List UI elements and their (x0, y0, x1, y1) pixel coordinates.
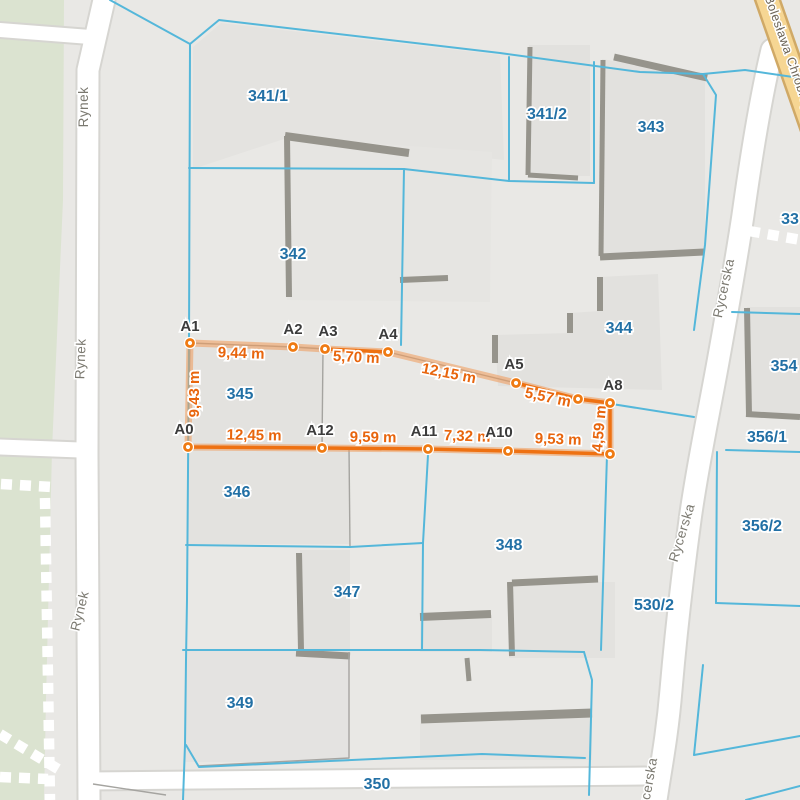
measure-segment (428, 449, 508, 451)
vertex-label-a2: A2 (283, 321, 302, 338)
distance-label: 9,53 m (535, 430, 582, 449)
measure-point-center (514, 381, 518, 385)
street-label-rynek: Rynek (76, 87, 91, 128)
measure-point-center (320, 446, 324, 450)
vertex-label-a12: A12 (306, 422, 334, 439)
parcel-label-530-2: 530/2 (634, 597, 674, 614)
parcel-label-347: 347 (334, 584, 361, 601)
measure-point-center (426, 447, 430, 451)
distance-label: 5,70 m (332, 348, 380, 367)
vertex-label-a11: A11 (411, 423, 438, 440)
measure-point-center (608, 452, 612, 456)
map-canvas[interactable]: RynekRynekRynekRycerskaRycerskaRycerskaB… (0, 0, 800, 800)
parcel-label-33: 33 (781, 211, 799, 228)
measure-segment (188, 447, 322, 448)
parcel-label-356-1: 356/1 (747, 429, 787, 446)
measure-point-center (386, 350, 390, 354)
parcel-label-341-2: 341/2 (527, 106, 567, 123)
vertex-label-a1: A1 (180, 318, 199, 335)
parcel-label-342: 342 (280, 246, 307, 263)
parcel-label-345: 345 (227, 386, 254, 403)
measure-point-center (323, 347, 327, 351)
measure-point-center (188, 341, 192, 345)
measure-point-center (186, 445, 190, 449)
measure-segment (322, 448, 428, 449)
measure-point-center (506, 449, 510, 453)
vertex-label-a10: A10 (485, 424, 513, 441)
vertex-label-a8: A8 (603, 377, 622, 394)
parcel-label-344: 344 (606, 320, 633, 337)
vertex-label-a3: A3 (318, 323, 337, 340)
measure-point-center (576, 397, 580, 401)
parcel-label-348: 348 (496, 537, 523, 554)
parcel-label-343: 343 (638, 119, 665, 136)
parcel-label-356-2: 356/2 (742, 518, 782, 535)
parcel-label-346: 346 (224, 484, 251, 501)
parcel-label-349: 349 (227, 695, 254, 712)
measure-point-center (608, 401, 612, 405)
street-label-rynek: Rynek (72, 338, 88, 379)
distance-label: 9,44 m (218, 344, 265, 363)
distance-label: 9,59 m (350, 429, 397, 447)
parcel-label-350: 350 (364, 776, 391, 793)
vertex-label-a4: A4 (378, 326, 398, 343)
vertex-label-a5: A5 (504, 356, 523, 373)
parcel-label-354: 354 (771, 358, 798, 375)
vertex-label-a0: A0 (174, 421, 193, 438)
distance-label: 12,45 m (226, 427, 281, 445)
parcel-label-341-1: 341/1 (248, 88, 288, 105)
measure-point-center (291, 345, 295, 349)
distance-label: 7,32 m (444, 427, 491, 446)
distance-label: 9,43 m (186, 371, 203, 418)
map-viewport[interactable]: RynekRynekRynekRycerskaRycerskaRycerskaB… (0, 0, 800, 800)
